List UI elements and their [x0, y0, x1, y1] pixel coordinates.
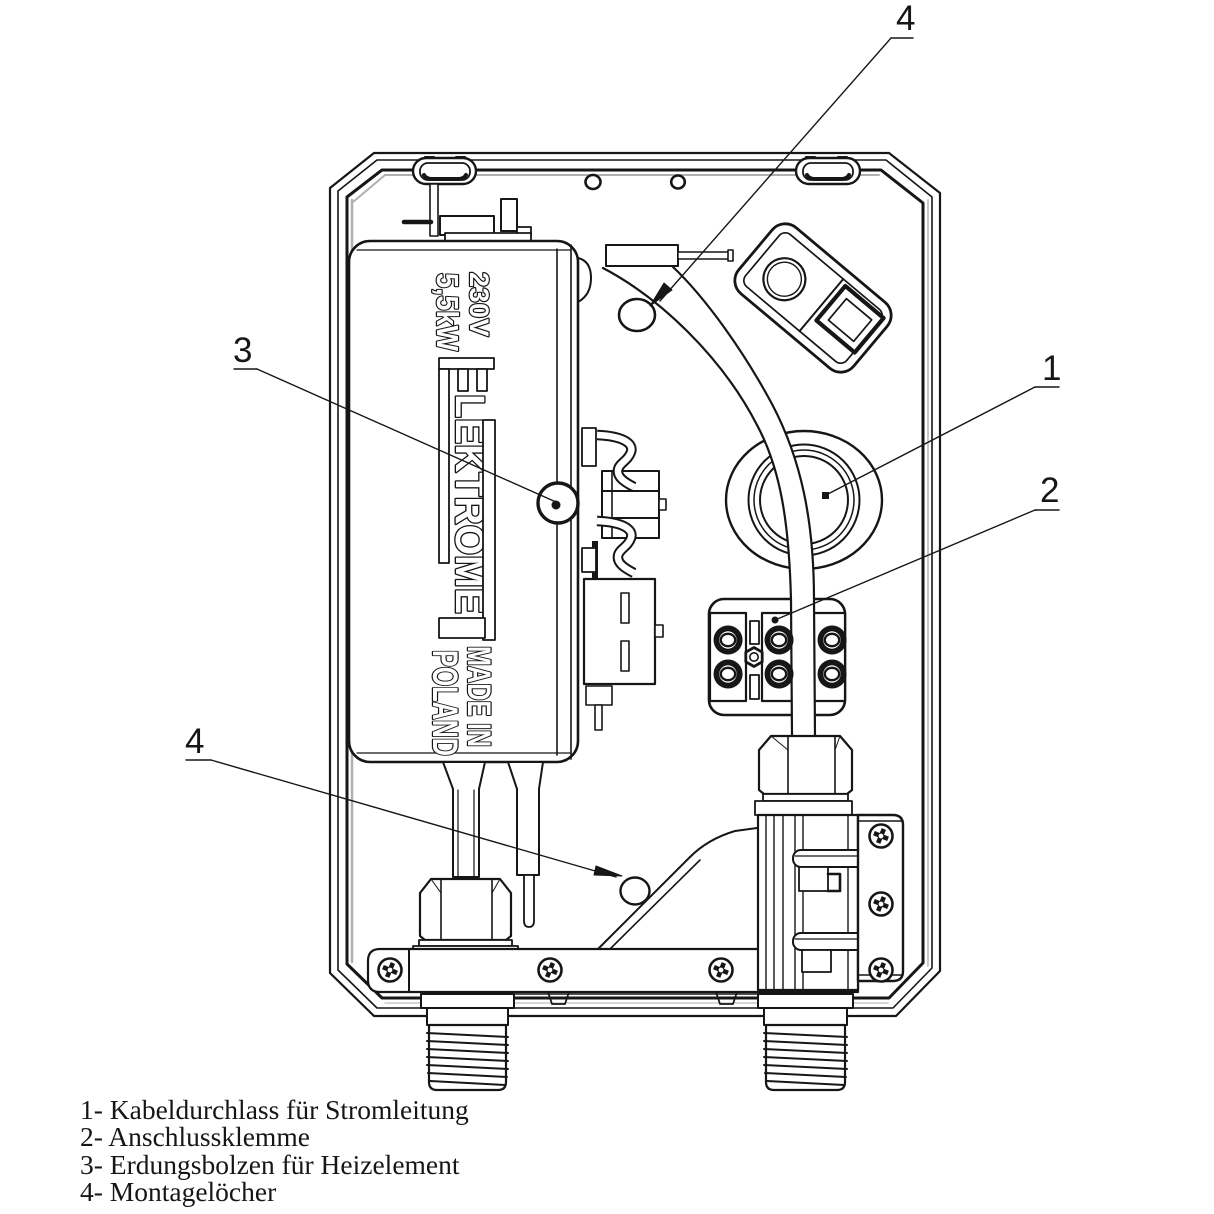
svg-text:3: 3 — [233, 331, 252, 370]
svg-text:MADE IN: MADE IN — [461, 646, 497, 747]
svg-text:2: 2 — [1040, 471, 1059, 510]
svg-text:4- Montagelöcher: 4- Montagelöcher — [80, 1176, 276, 1207]
svg-text:POLAND: POLAND — [425, 650, 464, 756]
svg-text:1: 1 — [1042, 349, 1061, 388]
svg-text:4: 4 — [185, 722, 204, 761]
svg-text:2- Anschlussklemme: 2- Anschlussklemme — [80, 1121, 310, 1152]
svg-text:230V: 230V — [464, 272, 494, 337]
svg-text:4: 4 — [896, 0, 915, 38]
svg-text:5,5kW: 5,5kW — [430, 273, 465, 352]
